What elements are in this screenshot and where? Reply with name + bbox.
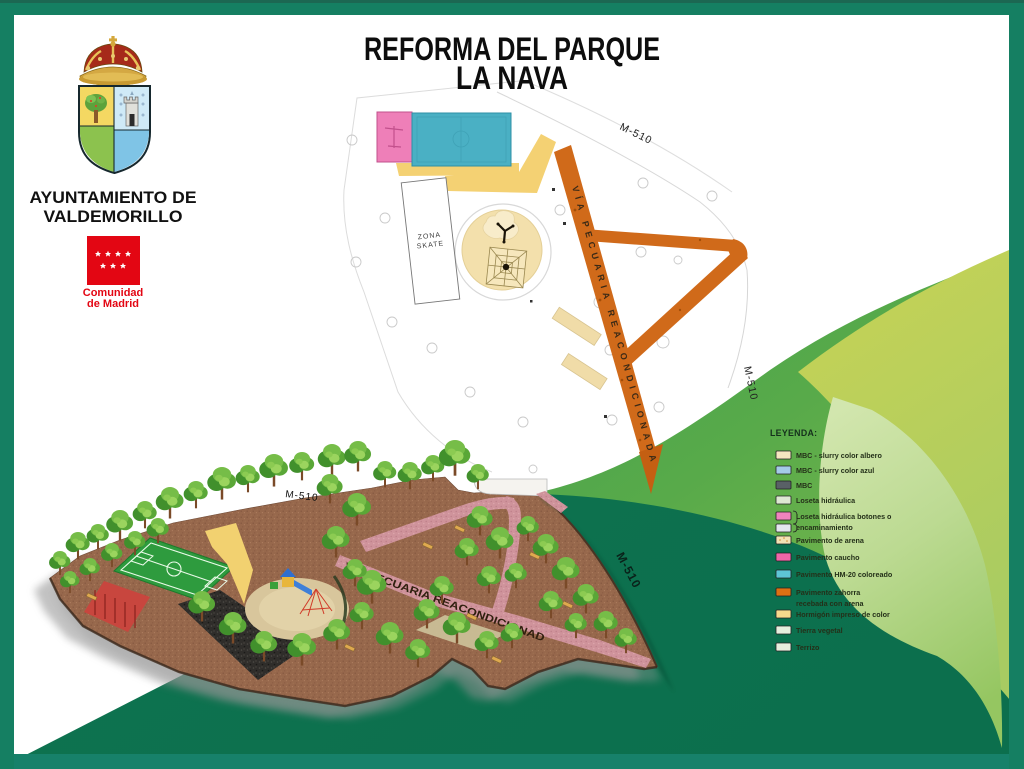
svg-text:recebada con arena: recebada con arena <box>796 599 865 608</box>
svg-text:MBC - slurry color azul: MBC - slurry color azul <box>796 466 874 475</box>
svg-text:Pavimento de arena: Pavimento de arena <box>796 536 865 545</box>
svg-text:Pavimento HM-20 coloreado: Pavimento HM-20 coloreado <box>796 570 893 579</box>
svg-text:MBC: MBC <box>796 481 812 490</box>
svg-text:LEYENDA:: LEYENDA: <box>770 428 817 438</box>
svg-text:AYUNTAMIENTO DE: AYUNTAMIENTO DE <box>30 188 197 207</box>
svg-text:LA NAVA: LA NAVA <box>456 60 568 96</box>
svg-text:Loseta hidráulica: Loseta hidráulica <box>796 496 856 505</box>
svg-text:VALDEMORILLO: VALDEMORILLO <box>44 207 183 226</box>
svg-text:Tierra vegetal: Tierra vegetal <box>796 626 843 635</box>
svg-text:Loseta hidráulica botones o: Loseta hidráulica botones o <box>796 512 892 521</box>
svg-text:MBC - slurry color albero: MBC - slurry color albero <box>796 451 882 460</box>
svg-text:Terrizo: Terrizo <box>796 643 820 652</box>
svg-text:Hormigón impreso de color: Hormigón impreso de color <box>796 610 890 619</box>
svg-text:encaminamiento: encaminamiento <box>796 523 853 532</box>
svg-text:Pavimento zahorra: Pavimento zahorra <box>796 588 861 597</box>
svg-text:de Madrid: de Madrid <box>87 298 139 310</box>
svg-text:Pavimento caucho: Pavimento caucho <box>796 553 860 562</box>
